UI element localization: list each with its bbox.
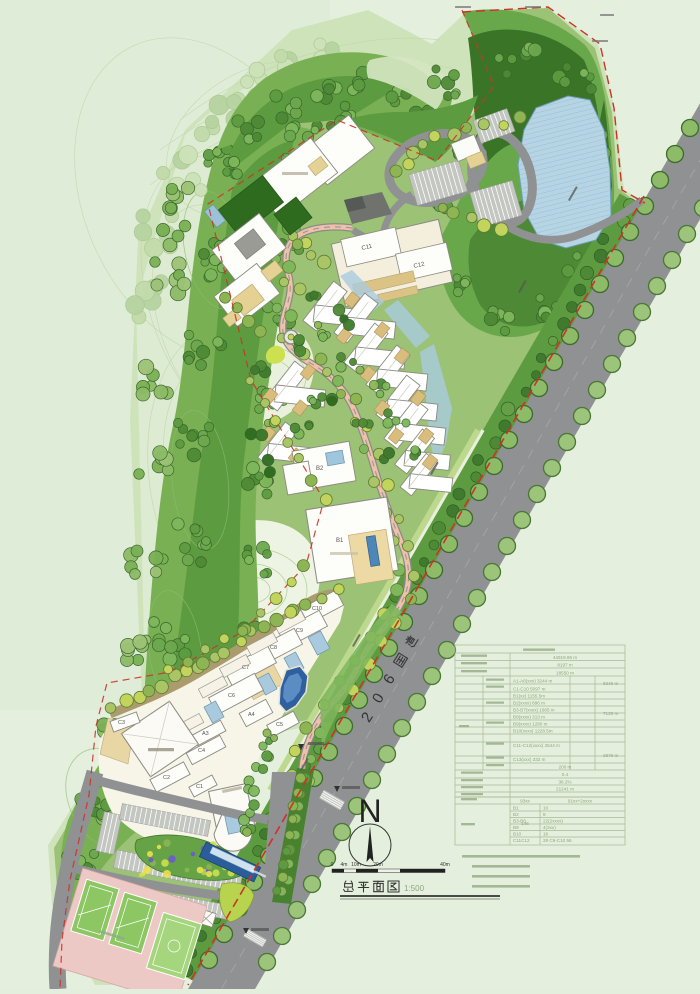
svg-text:18550 m: 18550 m (556, 671, 574, 676)
svg-text:C9: C9 (296, 628, 303, 634)
svg-text:22(2xxxx): 22(2xxxx) (543, 819, 563, 824)
svg-text:4m: 4m (341, 862, 348, 868)
svg-text:10m: 10m (351, 862, 361, 868)
svg-text:8346 m: 8346 m (603, 681, 618, 686)
svg-text:B9: B9 (513, 825, 519, 830)
svg-text:16: 16 (543, 832, 549, 837)
svg-text:40m: 40m (440, 862, 450, 868)
svg-text:44919.95 m: 44919.95 m (553, 655, 577, 660)
svg-text:C11-C12(xxxx) 2544 m: C11-C12(xxxx) 2544 m (513, 743, 560, 748)
svg-text:C1-C10 5097 m: C1-C10 5097 m (513, 687, 546, 692)
svg-text:146: 146 (521, 821, 529, 826)
svg-text:B2(xxxx) 896 m: B2(xxxx) 896 m (513, 701, 545, 706)
svg-text:38.2%: 38.2% (558, 780, 571, 785)
svg-text:28 C6-C10 56: 28 C6-C10 56 (543, 838, 572, 843)
svg-text:C8: C8 (270, 645, 277, 651)
svg-text:C2: C2 (163, 775, 170, 781)
svg-text:C13(xxx) 332 m: C13(xxx) 332 m (513, 757, 546, 762)
svg-text:A3: A3 (202, 731, 209, 737)
svg-text:B2: B2 (316, 466, 324, 472)
svg-text:1:500: 1:500 (404, 884, 425, 893)
svg-text:C5: C5 (276, 722, 283, 728)
svg-text:4(2xx): 4(2xx) (543, 825, 556, 830)
svg-text:C1: C1 (196, 784, 203, 790)
svg-text:91xx+2xxxx: 91xx+2xxxx (568, 799, 593, 804)
svg-text:B3-B7(xxxx) 1665 m: B3-B7(xxxx) 1665 m (513, 708, 555, 713)
svg-text:21241 m: 21241 m (556, 787, 574, 792)
svg-text:B9(xxxx) 1280 m: B9(xxxx) 1280 m (513, 722, 548, 727)
svg-text:C6: C6 (228, 693, 235, 699)
svg-text:93xx: 93xx (520, 799, 530, 804)
svg-text:0.4: 0.4 (562, 772, 569, 777)
svg-text:C4: C4 (198, 748, 205, 754)
svg-text:8197 m: 8197 m (557, 663, 572, 668)
svg-text:0: 0 (331, 862, 334, 868)
svg-text:8: 8 (543, 812, 546, 817)
svg-text:A1-A6(xxx) 3244 m: A1-A6(xxx) 3244 m (513, 679, 552, 684)
svg-text:C3: C3 (118, 720, 125, 726)
svg-text:B2: B2 (513, 812, 519, 817)
svg-text:B1(xx) 1155.5m: B1(xx) 1155.5m (513, 694, 545, 699)
svg-text:20m: 20m (373, 862, 383, 868)
svg-text:C11C12: C11C12 (513, 838, 530, 843)
svg-text:200 m: 200 m (559, 765, 572, 770)
svg-text:B8(xxxx) 313 m: B8(xxxx) 313 m (513, 715, 545, 720)
svg-text:10: 10 (543, 806, 549, 811)
svg-text:2876 m: 2876 m (603, 753, 618, 758)
svg-text:B10(xxxx) 1228.5m: B10(xxxx) 1228.5m (513, 729, 553, 734)
svg-text:C7: C7 (242, 665, 249, 671)
svg-text:A4: A4 (248, 712, 255, 718)
svg-text:7128 m: 7128 m (603, 711, 618, 716)
svg-text:B10: B10 (513, 832, 522, 837)
svg-text:B1: B1 (513, 806, 519, 811)
svg-text:B1: B1 (336, 538, 344, 544)
svg-text:C10: C10 (312, 606, 322, 612)
